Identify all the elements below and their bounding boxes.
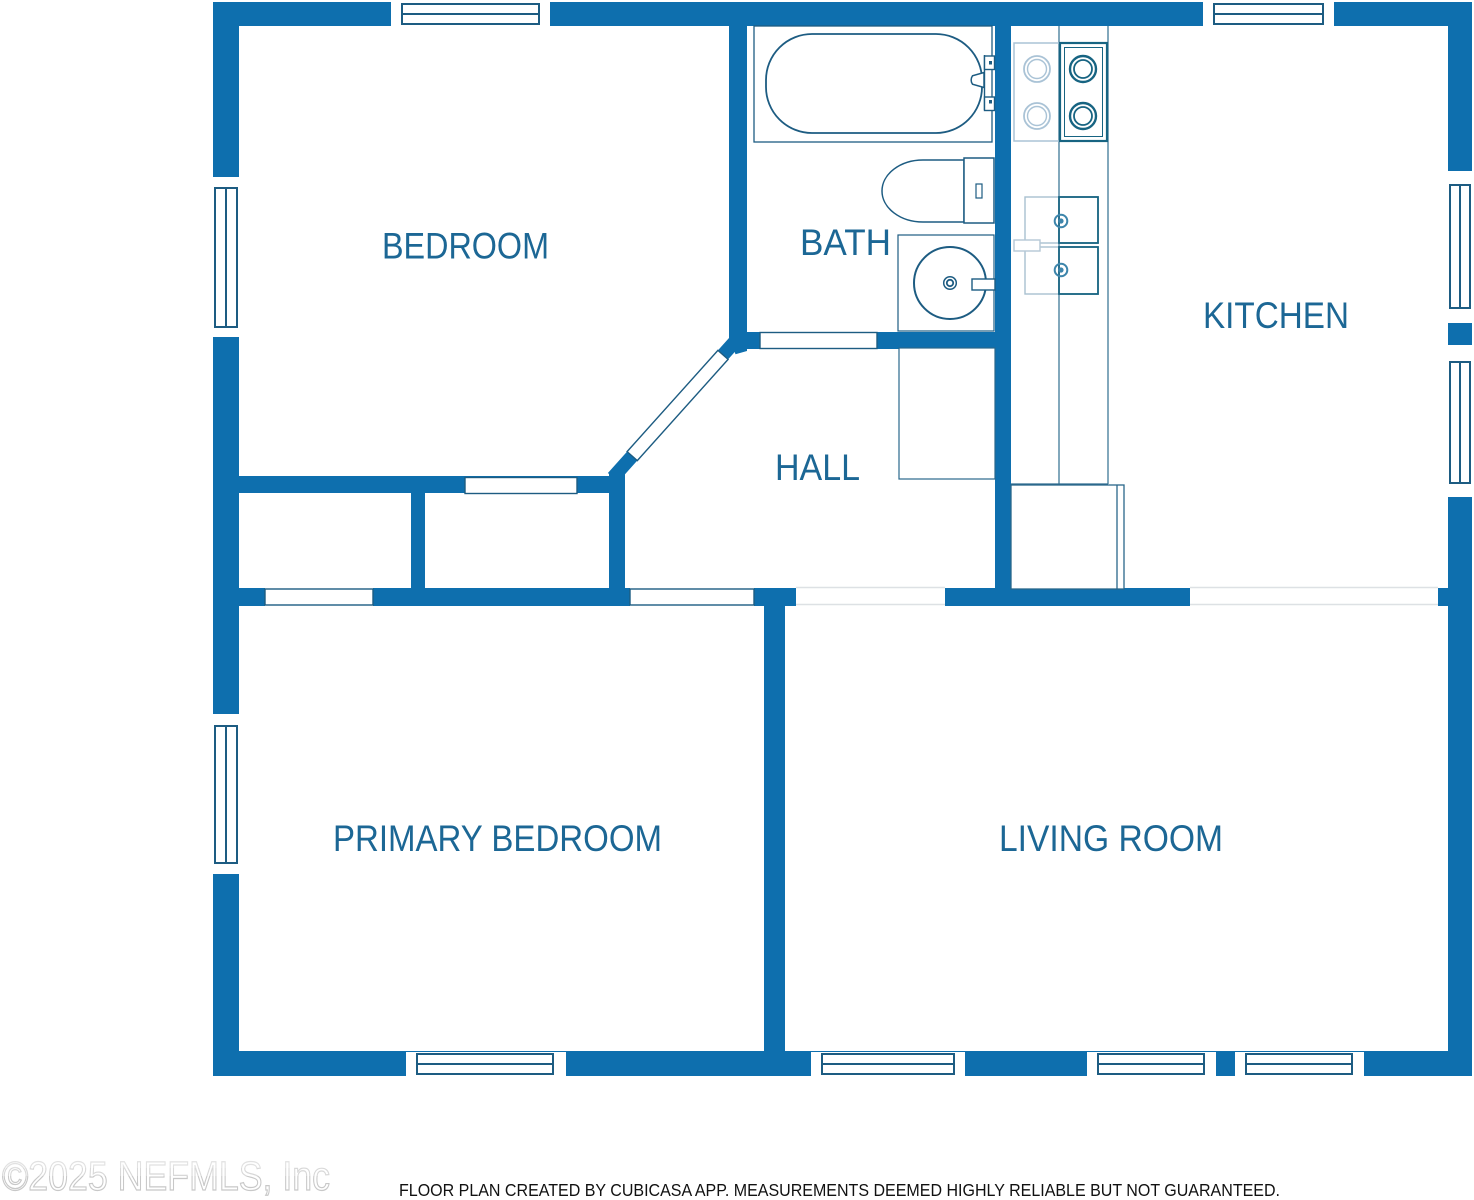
svg-text:BEDROOM: BEDROOM bbox=[382, 226, 549, 267]
svg-text:KITCHEN: KITCHEN bbox=[1203, 295, 1349, 336]
svg-text:PRIMARY BEDROOM: PRIMARY BEDROOM bbox=[333, 818, 662, 859]
svg-text:LIVING ROOM: LIVING ROOM bbox=[999, 818, 1223, 859]
svg-text:FLOOR PLAN CREATED BY CUBICASA: FLOOR PLAN CREATED BY CUBICASA APP. MEAS… bbox=[399, 1180, 1280, 1200]
svg-text:HALL: HALL bbox=[775, 447, 860, 488]
svg-text:BATH: BATH bbox=[800, 222, 891, 263]
